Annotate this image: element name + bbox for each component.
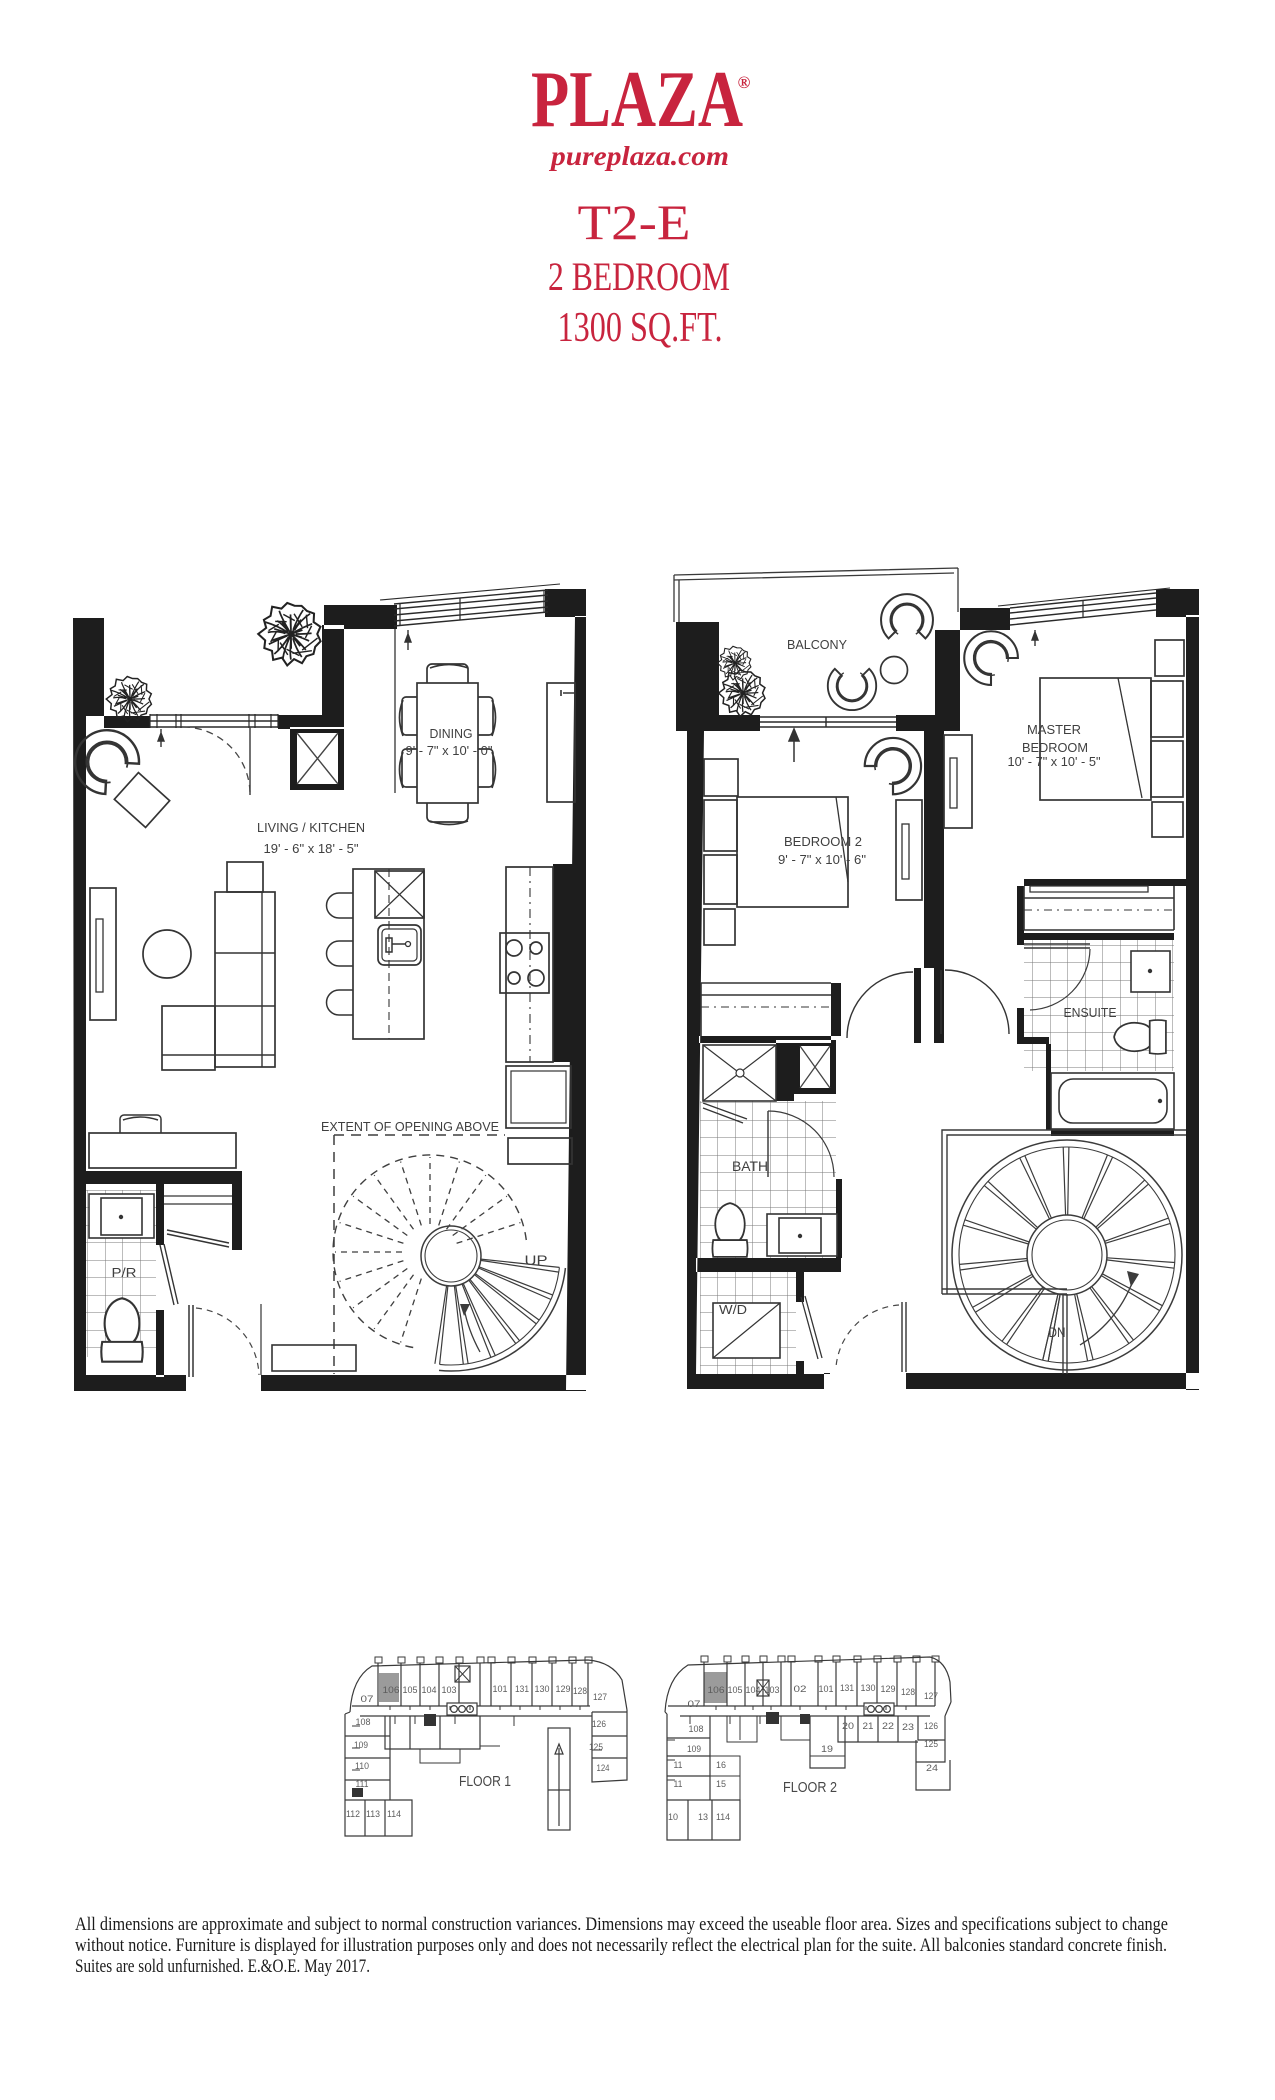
svg-text:23: 23 xyxy=(902,1722,914,1732)
svg-text:1300 SQ.FT.: 1300 SQ.FT. xyxy=(558,305,723,351)
svg-text:125: 125 xyxy=(589,1742,603,1752)
svg-text:131: 131 xyxy=(515,1684,529,1694)
svg-text:112: 112 xyxy=(346,1809,360,1819)
svg-text:07: 07 xyxy=(361,1694,374,1704)
svg-text:UP: UP xyxy=(525,1252,548,1268)
svg-text:130: 130 xyxy=(861,1683,876,1693)
svg-text:130: 130 xyxy=(535,1684,550,1694)
svg-text:10: 10 xyxy=(668,1812,678,1822)
svg-text:16: 16 xyxy=(716,1760,726,1770)
svg-text:P/R: P/R xyxy=(112,1265,137,1280)
svg-text:19' - 6" x 18' - 5": 19' - 6" x 18' - 5" xyxy=(264,842,359,856)
svg-text:104: 104 xyxy=(746,1685,761,1695)
svg-text:BATH: BATH xyxy=(732,1159,768,1174)
svg-text:108: 108 xyxy=(689,1724,704,1734)
svg-text:125: 125 xyxy=(924,1739,938,1749)
svg-text:110: 110 xyxy=(355,1761,369,1771)
svg-text:22: 22 xyxy=(882,1721,894,1731)
svg-text:DN: DN xyxy=(1049,1325,1066,1340)
svg-text:113: 113 xyxy=(366,1809,380,1819)
svg-text:15: 15 xyxy=(716,1779,726,1789)
svg-text:ENSUITE: ENSUITE xyxy=(1064,1005,1117,1020)
svg-text:13: 13 xyxy=(698,1812,708,1822)
svg-text:104: 104 xyxy=(422,1685,437,1695)
svg-text:BALCONY: BALCONY xyxy=(787,637,847,652)
svg-text:FLOOR 1: FLOOR 1 xyxy=(459,1774,511,1790)
svg-text:128: 128 xyxy=(901,1687,915,1697)
svg-text:EXTENT OF OPENING ABOVE: EXTENT OF OPENING ABOVE xyxy=(321,1119,499,1134)
svg-text:128: 128 xyxy=(573,1686,587,1696)
svg-text:DINING: DINING xyxy=(430,726,473,741)
svg-text:pureplaza.com: pureplaza.com xyxy=(549,141,729,171)
svg-text:07: 07 xyxy=(688,1699,701,1709)
svg-text:BEDROOM: BEDROOM xyxy=(1022,740,1088,755)
svg-text:105: 105 xyxy=(728,1685,743,1695)
svg-text:114: 114 xyxy=(387,1809,401,1819)
svg-text:FLOOR 2: FLOOR 2 xyxy=(783,1780,837,1796)
svg-text:129: 129 xyxy=(881,1684,896,1694)
svg-text:9' - 7" x 10' - 0": 9' - 7" x 10' - 0" xyxy=(406,744,493,758)
svg-text:124: 124 xyxy=(597,1763,610,1773)
svg-text:®: ® xyxy=(738,73,751,92)
svg-text:without notice. Furniture is d: without notice. Furniture is displayed f… xyxy=(75,1936,1167,1956)
svg-text:MASTER: MASTER xyxy=(1027,722,1081,737)
svg-text:24: 24 xyxy=(926,1763,938,1773)
svg-text:21: 21 xyxy=(863,1721,874,1731)
svg-text:103: 103 xyxy=(765,1685,780,1695)
svg-text:02: 02 xyxy=(794,1684,807,1694)
svg-text:Suites are sold unfurnished. E: Suites are sold unfurnished. E.&O.E. May… xyxy=(75,1957,370,1977)
svg-text:114: 114 xyxy=(716,1812,730,1822)
svg-text:105: 105 xyxy=(403,1685,418,1695)
svg-text:126: 126 xyxy=(592,1719,606,1729)
svg-text:111: 111 xyxy=(356,1779,369,1789)
svg-text:127: 127 xyxy=(593,1692,607,1702)
svg-text:9' - 7" x 10' - 6": 9' - 7" x 10' - 6" xyxy=(778,853,866,867)
svg-text:131: 131 xyxy=(840,1683,854,1693)
svg-text:127: 127 xyxy=(924,1691,938,1701)
svg-text:11: 11 xyxy=(674,1779,683,1789)
svg-text:109: 109 xyxy=(354,1740,368,1750)
svg-text:126: 126 xyxy=(924,1721,938,1731)
svg-text:All dimensions are approximate: All dimensions are approximate and subje… xyxy=(75,1915,1168,1935)
svg-text:2 BEDROOM: 2 BEDROOM xyxy=(548,254,730,299)
svg-text:20: 20 xyxy=(842,1721,854,1731)
svg-text:106: 106 xyxy=(708,1685,725,1695)
svg-text:109: 109 xyxy=(687,1744,701,1754)
svg-text:PLAZA: PLAZA xyxy=(531,56,743,144)
svg-text:108: 108 xyxy=(356,1717,371,1727)
svg-text:129: 129 xyxy=(556,1684,571,1694)
svg-text:10' - 7" x 10' - 5": 10' - 7" x 10' - 5" xyxy=(1008,755,1101,769)
svg-text:101: 101 xyxy=(819,1684,834,1694)
svg-text:BEDROOM 2: BEDROOM 2 xyxy=(784,834,862,849)
svg-text:101: 101 xyxy=(493,1684,508,1694)
svg-text:19: 19 xyxy=(821,1744,833,1754)
svg-text:11: 11 xyxy=(674,1760,683,1770)
svg-text:103: 103 xyxy=(442,1685,457,1695)
svg-text:LIVING / KITCHEN: LIVING / KITCHEN xyxy=(257,820,365,835)
svg-text:W/D: W/D xyxy=(719,1302,747,1317)
svg-text:T2-E: T2-E xyxy=(578,194,691,250)
svg-text:106: 106 xyxy=(383,1685,400,1695)
